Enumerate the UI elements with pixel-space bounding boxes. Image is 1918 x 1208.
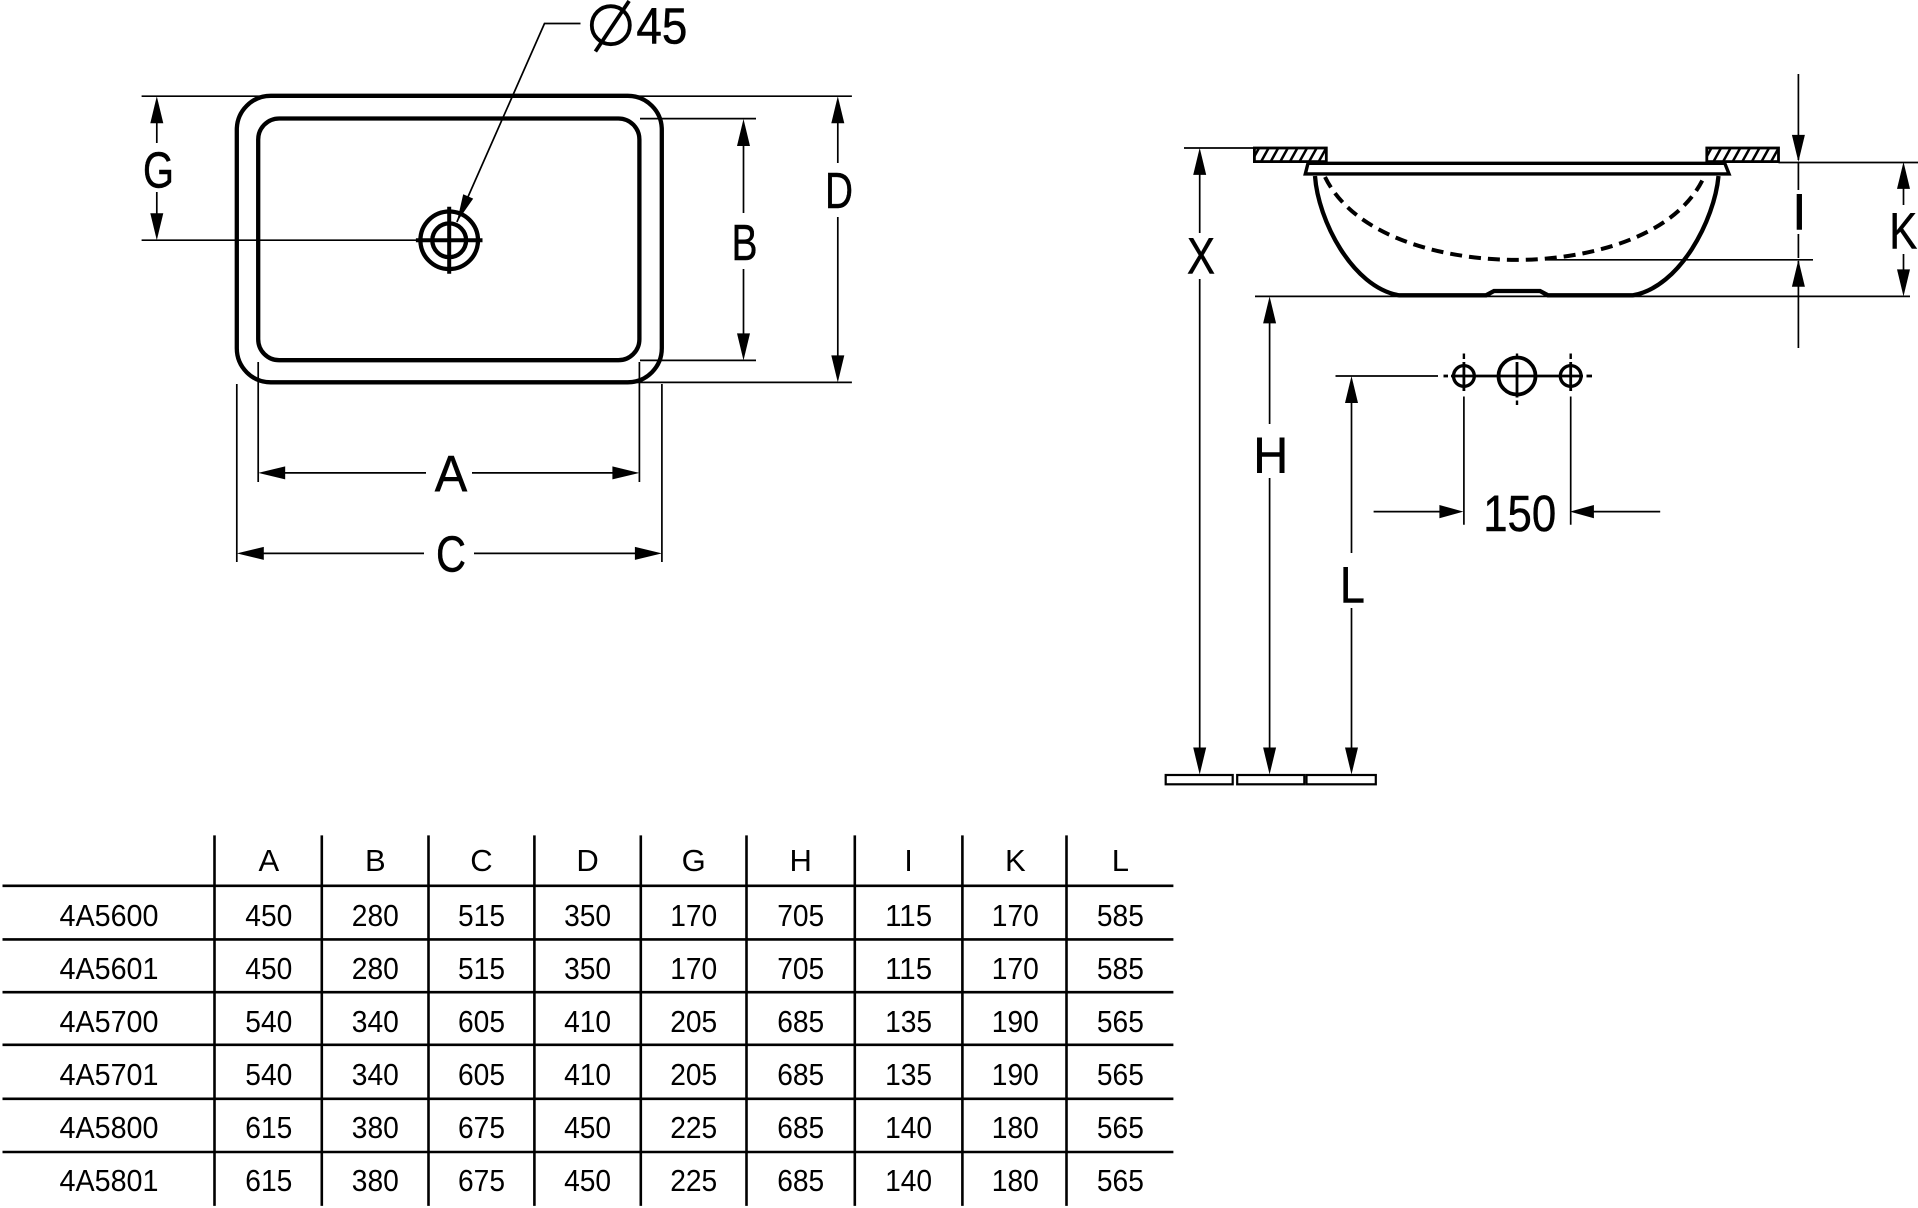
svg-text:380: 380 (352, 1163, 399, 1198)
svg-text:280: 280 (352, 951, 399, 986)
svg-text:4A5801: 4A5801 (60, 1163, 159, 1198)
svg-text:675: 675 (458, 1163, 505, 1198)
svg-text:615: 615 (245, 1110, 292, 1145)
svg-text:115: 115 (885, 951, 932, 986)
svg-text:135: 135 (885, 1057, 932, 1092)
svg-text:540: 540 (245, 1004, 292, 1039)
svg-text:140: 140 (885, 1163, 932, 1198)
svg-text:B: B (365, 843, 386, 878)
svg-text:G: G (682, 843, 706, 878)
svg-text:K: K (1889, 203, 1917, 260)
svg-text:150: 150 (1483, 485, 1556, 542)
svg-text:K: K (1005, 843, 1026, 878)
svg-text:515: 515 (458, 898, 505, 933)
svg-text:4A5800: 4A5800 (60, 1110, 159, 1145)
svg-text:190: 190 (992, 1004, 1039, 1039)
svg-text:190: 190 (992, 1057, 1039, 1092)
svg-text:4A5600: 4A5600 (60, 898, 159, 933)
svg-text:675: 675 (458, 1110, 505, 1145)
svg-text:205: 205 (670, 1057, 717, 1092)
svg-text:I: I (1792, 184, 1806, 241)
svg-text:380: 380 (352, 1110, 399, 1145)
svg-text:450: 450 (564, 1163, 611, 1198)
svg-text:170: 170 (670, 951, 717, 986)
svg-text:705: 705 (777, 898, 824, 933)
svg-text:585: 585 (1097, 898, 1144, 933)
svg-text:C: C (436, 526, 466, 583)
svg-text:565: 565 (1097, 1057, 1144, 1092)
svg-text:B: B (732, 214, 758, 271)
svg-text:450: 450 (245, 898, 292, 933)
svg-text:685: 685 (777, 1057, 824, 1092)
svg-text:4A5601: 4A5601 (60, 951, 159, 986)
svg-text:135: 135 (885, 1004, 932, 1039)
svg-text:170: 170 (670, 898, 717, 933)
svg-text:225: 225 (670, 1110, 717, 1145)
svg-text:410: 410 (564, 1057, 611, 1092)
svg-text:410: 410 (564, 1004, 611, 1039)
svg-text:170: 170 (992, 898, 1039, 933)
svg-text:I: I (904, 843, 913, 878)
svg-text:615: 615 (245, 1163, 292, 1198)
svg-text:605: 605 (458, 1057, 505, 1092)
svg-text:45: 45 (636, 0, 687, 54)
svg-text:4A5700: 4A5700 (60, 1004, 159, 1039)
svg-text:205: 205 (670, 1004, 717, 1039)
svg-text:G: G (143, 142, 174, 199)
svg-text:565: 565 (1097, 1110, 1144, 1145)
svg-text:X: X (1187, 228, 1215, 285)
svg-text:685: 685 (777, 1110, 824, 1145)
svg-text:H: H (790, 843, 812, 878)
svg-text:180: 180 (992, 1163, 1039, 1198)
svg-text:340: 340 (352, 1057, 399, 1092)
svg-text:280: 280 (352, 898, 399, 933)
svg-text:585: 585 (1097, 951, 1144, 986)
svg-text:450: 450 (245, 951, 292, 986)
svg-text:565: 565 (1097, 1004, 1144, 1039)
svg-text:H: H (1253, 427, 1288, 484)
svg-text:450: 450 (564, 1110, 611, 1145)
svg-text:705: 705 (777, 951, 824, 986)
svg-text:C: C (470, 843, 492, 878)
svg-text:685: 685 (777, 1163, 824, 1198)
svg-text:115: 115 (885, 898, 932, 933)
svg-text:D: D (576, 843, 598, 878)
svg-text:180: 180 (992, 1110, 1039, 1145)
svg-text:540: 540 (245, 1057, 292, 1092)
svg-text:4A5701: 4A5701 (60, 1057, 159, 1092)
svg-text:A: A (435, 446, 468, 503)
svg-text:140: 140 (885, 1110, 932, 1145)
svg-text:L: L (1112, 843, 1129, 878)
svg-text:685: 685 (777, 1004, 824, 1039)
svg-text:605: 605 (458, 1004, 505, 1039)
svg-text:350: 350 (564, 951, 611, 986)
svg-text:350: 350 (564, 898, 611, 933)
svg-text:D: D (825, 162, 853, 219)
svg-text:A: A (258, 843, 279, 878)
svg-text:340: 340 (352, 1004, 399, 1039)
svg-text:225: 225 (670, 1163, 717, 1198)
svg-text:L: L (1340, 557, 1365, 614)
svg-text:170: 170 (992, 951, 1039, 986)
svg-text:515: 515 (458, 951, 505, 986)
svg-text:565: 565 (1097, 1163, 1144, 1198)
